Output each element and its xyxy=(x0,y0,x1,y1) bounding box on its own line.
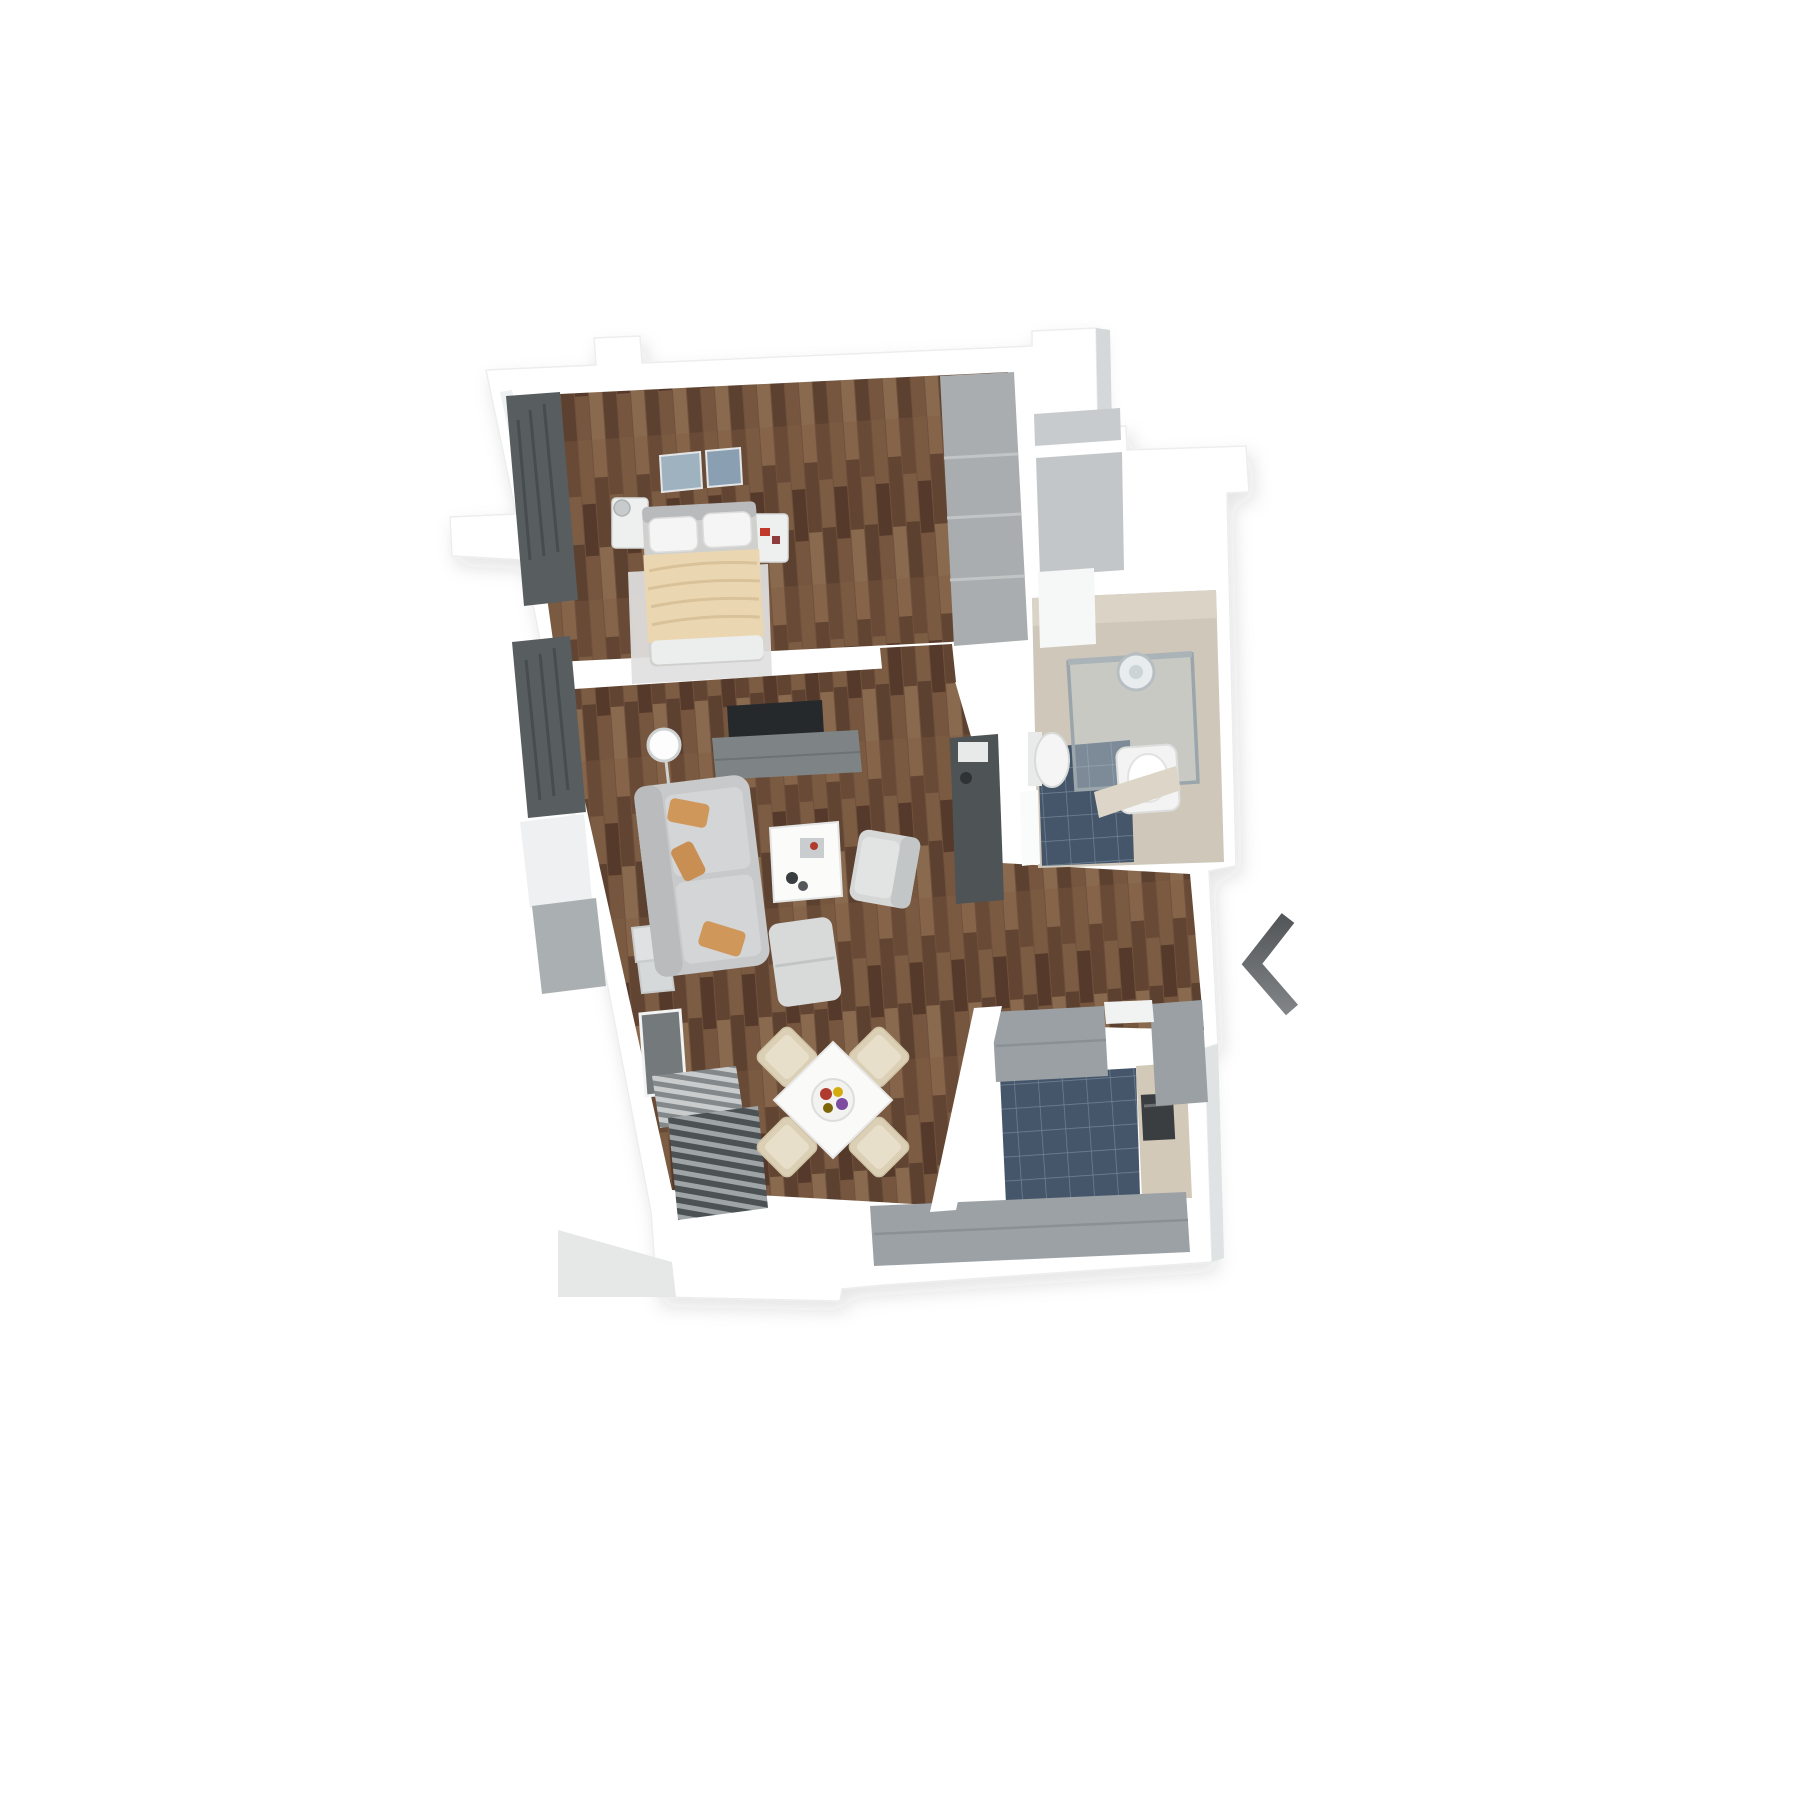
nightstand-decor xyxy=(760,528,770,536)
kitchen-floor xyxy=(1000,1068,1140,1204)
radiator xyxy=(950,734,1004,904)
shower-head-center xyxy=(1129,665,1143,679)
bed xyxy=(641,501,765,667)
coffee-table xyxy=(770,822,842,902)
dining-set xyxy=(754,1024,911,1179)
fruit-plate xyxy=(812,1079,854,1121)
hall-floor xyxy=(1034,408,1121,446)
radiator-knob xyxy=(960,772,972,784)
ottoman xyxy=(767,916,842,1008)
bed-pillow xyxy=(648,516,698,552)
kitchen-counter-right xyxy=(1150,1000,1208,1106)
bath-door xyxy=(1020,790,1040,866)
bedroom-wall-art xyxy=(660,452,702,492)
living-window-2 xyxy=(532,898,606,994)
table-decor xyxy=(810,842,818,850)
bedroom-wall-art xyxy=(706,448,742,487)
fruit xyxy=(823,1103,833,1113)
fruit xyxy=(836,1098,848,1110)
blinds-lower xyxy=(668,1106,768,1220)
living-window xyxy=(520,814,592,908)
fruit xyxy=(833,1087,843,1097)
bathroom xyxy=(1020,568,1224,868)
armchair xyxy=(848,828,922,910)
floorplan xyxy=(0,0,1800,1800)
table-decor xyxy=(786,872,798,884)
bedside-lamp xyxy=(614,500,630,516)
chevron-left-icon xyxy=(1236,908,1310,1020)
nightstand-decor xyxy=(772,536,780,544)
wardrobe xyxy=(940,372,1028,646)
carousel-previous-button[interactable] xyxy=(1236,908,1310,1020)
bed-pillow xyxy=(702,511,752,547)
table-decor xyxy=(798,881,808,891)
radiator-panel xyxy=(958,742,988,762)
entry-hall xyxy=(1034,408,1124,576)
bathroom-entry xyxy=(1038,568,1096,648)
listing-image-viewer xyxy=(0,0,1800,1800)
bedroom xyxy=(500,372,1028,688)
kitchen-wall xyxy=(1104,1000,1154,1024)
fruit xyxy=(820,1088,832,1100)
toilet xyxy=(1028,732,1069,787)
hall-floor xyxy=(1036,452,1124,576)
floor-lamp xyxy=(648,729,680,761)
sofa xyxy=(633,773,772,978)
